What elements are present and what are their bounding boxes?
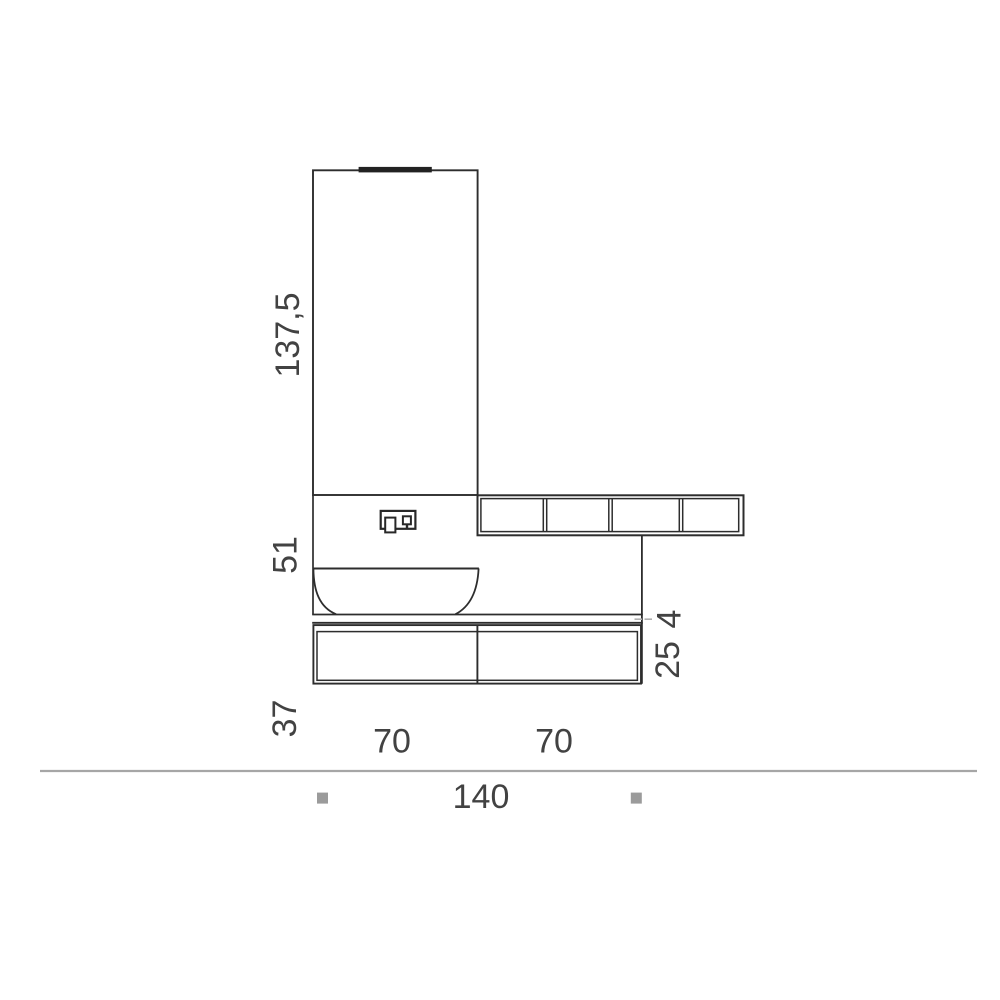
svg-text:137,5: 137,5	[269, 292, 307, 377]
svg-text:51: 51	[266, 536, 304, 574]
svg-text:70: 70	[373, 723, 411, 761]
svg-text:37: 37	[266, 700, 304, 738]
svg-text:4: 4	[650, 610, 688, 629]
svg-text:140: 140	[453, 778, 510, 816]
svg-text:70: 70	[535, 723, 573, 761]
svg-text:25: 25	[649, 641, 687, 679]
